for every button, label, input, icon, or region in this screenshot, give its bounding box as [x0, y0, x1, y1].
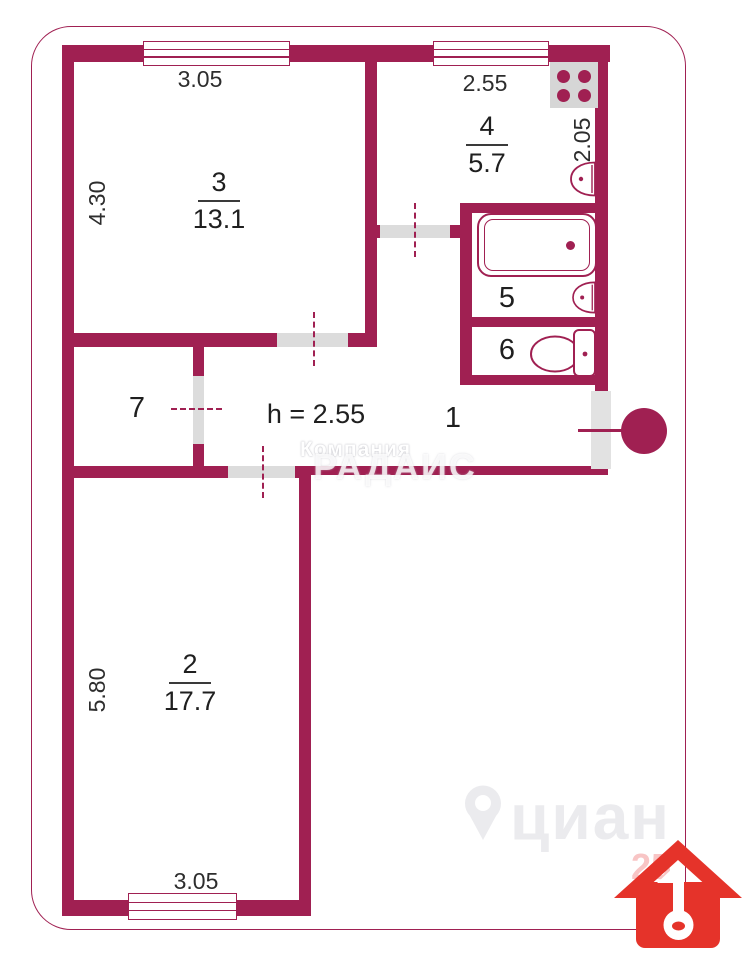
- toilet-icon: [528, 328, 598, 378]
- window-room2: [128, 893, 237, 920]
- room-label-3: 3 13.1: [164, 168, 274, 234]
- room-area: 5.7: [442, 146, 532, 179]
- window-glass-line: [434, 49, 548, 51]
- room-label-hall: 1: [436, 402, 470, 435]
- window-kitchen: [433, 41, 549, 66]
- room-label-bath: 5: [490, 282, 524, 315]
- window-glass-line: [129, 910, 236, 912]
- door-axis-closet: [171, 408, 222, 410]
- wall-bath-left: [460, 203, 472, 385]
- room-label-wc: 6: [490, 334, 524, 367]
- room-number: 4: [466, 112, 507, 146]
- door-opening-closet: [193, 376, 204, 444]
- entry-door-knob-icon: [621, 408, 667, 454]
- window-room3: [143, 41, 290, 66]
- room-area: 17.7: [135, 684, 245, 717]
- room-label-2: 2 17.7: [135, 650, 245, 716]
- door-axis-kitchen: [414, 203, 416, 257]
- window-glass-line: [434, 56, 548, 58]
- room-label-4: 4 5.7: [442, 112, 532, 178]
- room-label-closet: 7: [120, 392, 154, 425]
- wall-hall-bottom-left: [62, 466, 228, 478]
- dim-kitchen-depth: 2.05: [569, 90, 595, 190]
- door-axis-room3: [313, 312, 315, 366]
- dim-room3-depth: 4.30: [84, 153, 110, 253]
- wall-room3-right: [365, 45, 377, 347]
- wall-bath-wc-divider: [460, 317, 608, 327]
- dim-room3-width: 3.05: [150, 66, 250, 92]
- dim-kitchen-width: 2.55: [435, 70, 535, 96]
- floor-plan: 3.05 2.55 4.30 2.05 5.80 3.05 3 13.1 4 5…: [0, 0, 749, 960]
- agency-watermark-line2: РАДАИС: [290, 446, 500, 488]
- dim-room2-width: 3.05: [146, 868, 246, 894]
- house-key-logo-icon: [612, 838, 744, 950]
- dim-room2-depth: 5.80: [84, 640, 110, 740]
- stove-burner: [557, 70, 570, 83]
- wall-bath-top: [460, 203, 608, 213]
- bathtub-drain: [566, 241, 575, 250]
- entry-door-icon: [578, 429, 624, 432]
- wall-exterior-left: [62, 45, 74, 916]
- room-number: 2: [169, 650, 210, 684]
- window-glass-line: [129, 902, 236, 904]
- stove-burner: [578, 70, 591, 83]
- bath-sink-icon: [570, 281, 598, 314]
- door-axis-room2: [262, 446, 264, 498]
- room-number: 3: [198, 168, 239, 202]
- ceiling-height-label: h = 2.55: [256, 399, 376, 430]
- window-glass-line: [144, 49, 289, 51]
- wall-room2-right: [299, 466, 311, 916]
- room-area: 13.1: [164, 202, 274, 235]
- window-glass-line: [144, 56, 289, 58]
